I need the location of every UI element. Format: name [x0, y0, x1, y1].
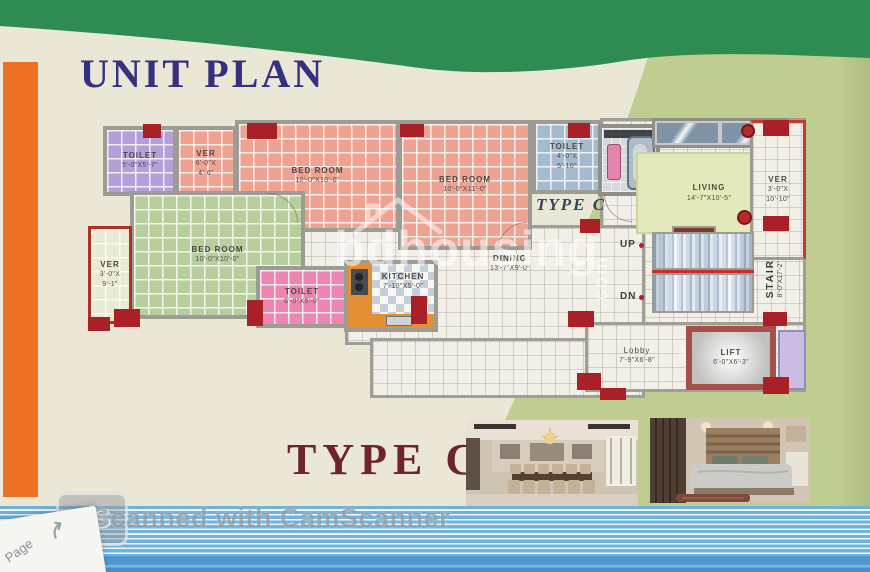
room-label: VER [196, 149, 215, 159]
room-label: TOILET [285, 287, 319, 297]
stair-dn-label: DN [620, 292, 644, 302]
room-dims: 14'-7"X10'-5" [687, 195, 731, 204]
room-dims: 6'-0"X [196, 160, 216, 169]
column [763, 216, 789, 231]
dining-room-photo [466, 420, 638, 506]
room-dims: 12'-0"X10'-0" [295, 177, 339, 186]
column [577, 373, 601, 390]
column [411, 296, 427, 324]
room-dims: 6'-0"X5'-0" [284, 298, 320, 307]
room-dims: 10'-10" [766, 196, 790, 205]
column [600, 388, 626, 400]
watermark-tld: .com [592, 238, 611, 308]
column [247, 300, 263, 326]
room-dims: 4'-0"X [557, 153, 577, 162]
room-label: VER [768, 175, 787, 185]
window-pane [657, 123, 718, 143]
column [568, 123, 590, 138]
room-dims: 3'-0"X [100, 271, 120, 280]
room-toilet-top-right: TOILET 4'-0"X 5'-10" [532, 120, 602, 194]
room-label: LIVING [693, 183, 726, 193]
watermark-brand: bdhousing [334, 224, 599, 274]
column [247, 123, 277, 139]
burner [355, 283, 363, 291]
type-title: TYPE C [287, 438, 483, 482]
lobby-label: Lobby 7'-9"X6'-8" [592, 346, 682, 366]
room-dims: 10'-0"X10'-0" [195, 256, 239, 265]
column [114, 309, 140, 327]
orange-stripe [3, 62, 38, 497]
room-dims: 10'-0"X11'-0" [443, 186, 487, 195]
camscanner-text: Scanned with CamScanner [92, 504, 450, 534]
room-label: TOILET [550, 142, 584, 152]
round-column [737, 210, 752, 225]
room-dims: 5'-0"X5'-7" [122, 162, 158, 171]
page-title: UNIT PLAN [80, 54, 325, 94]
sink-fixture [607, 144, 621, 180]
room-toilet-top-left: TOILET 5'-0"X5'-7" [103, 126, 177, 196]
column [400, 124, 424, 137]
room-label: VER [100, 260, 119, 270]
page-tab-label: Page [3, 537, 35, 565]
stair-up-label: UP [620, 240, 644, 250]
column [88, 317, 110, 331]
stair-flight-up [652, 232, 754, 270]
room-dims: 4'-6" [198, 170, 213, 179]
scanned-brochure-page: UNIT PLAN TOILET 5'-0"X5'-7" VER 6'-0"X … [0, 0, 870, 572]
room-dims: 3'-0"X [768, 186, 788, 195]
column [568, 311, 594, 327]
room-label: BED ROOM [439, 175, 491, 185]
room-label: BED ROOM [192, 245, 244, 255]
bottom-solid-band [0, 556, 870, 572]
stair-flight-down [652, 273, 754, 313]
plan-type-label: TYPE C [536, 196, 606, 213]
room-label: BED ROOM [292, 166, 344, 176]
room-label: TOILET [123, 151, 157, 161]
bedroom-photo [650, 418, 810, 503]
column [763, 312, 787, 326]
share-arrow-icon [46, 515, 74, 541]
room-dims: 9'-1" [102, 281, 117, 290]
sink-fixture [386, 316, 412, 326]
dn-marker-dot [639, 295, 644, 300]
column [763, 120, 789, 136]
column [143, 124, 161, 138]
column [763, 377, 789, 394]
up-marker-dot [639, 243, 644, 248]
room-dims: 5'-10" [557, 163, 577, 172]
round-column [741, 124, 755, 138]
